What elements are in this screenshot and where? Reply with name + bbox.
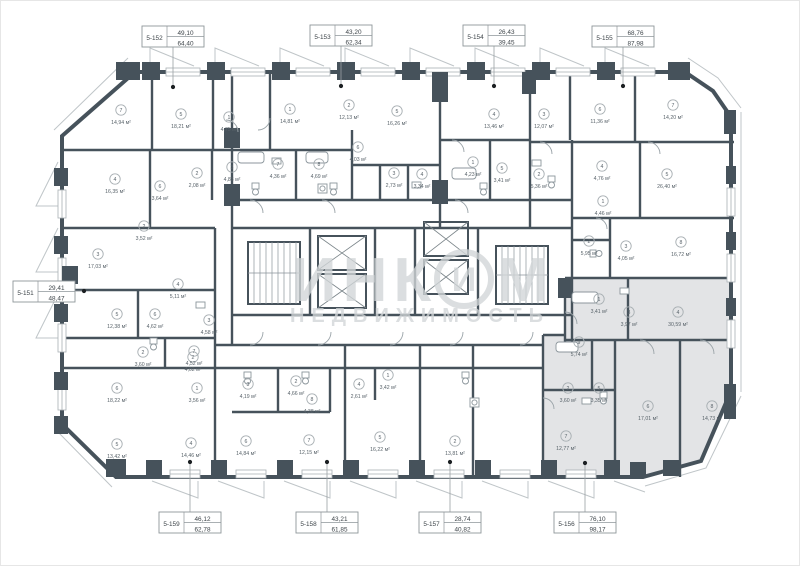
unit-label-5-153: 5-15343,2062,34: [310, 25, 372, 88]
room-number: 3: [97, 252, 100, 258]
floor-plan-drawing: 714,94 м²518,21 м²14,75 м²416,35 м²22,08…: [0, 0, 800, 566]
room-area: 12,07 м²: [534, 124, 554, 130]
leader-dot: [82, 289, 86, 293]
room-number: 9: [578, 340, 581, 346]
room-area: 4,76 м²: [594, 176, 611, 182]
room-number: 8: [311, 397, 314, 403]
leader-dot: [188, 460, 192, 464]
room-number: 5: [379, 435, 382, 441]
room-number: 7: [308, 438, 311, 444]
unit-area-total: 40,82: [455, 526, 471, 533]
unit-area-total: 87,98: [628, 40, 644, 47]
room-number: 8: [711, 404, 714, 410]
unit-id: 5-153: [314, 34, 331, 41]
room-area: 3,60 м²: [560, 398, 577, 404]
room-number: 2: [142, 350, 145, 356]
room-area: 2,08 м²: [189, 183, 206, 189]
room-number: 4: [601, 164, 604, 170]
room-area: 3,60 м²: [135, 362, 152, 368]
room-number: 1: [196, 386, 199, 392]
room-number: 7: [120, 108, 123, 114]
watermark: ИНК И М НЕДВИЖИМОСТЬ: [290, 246, 555, 327]
room-area: 4,19 м²: [240, 394, 257, 400]
room-area: 17,01 м²: [638, 416, 658, 422]
room-number: 5: [396, 109, 399, 115]
room-number: 3: [625, 244, 628, 250]
room-label: 44,76 м²: [594, 161, 611, 182]
room-label: 516,22 м²: [370, 432, 390, 453]
room-number: 2: [348, 103, 351, 109]
room-label: 611,36 м²: [590, 104, 610, 125]
room-area: 16,22 м²: [370, 447, 390, 453]
unit-area-living: 68,76: [628, 30, 644, 37]
unit-area-living: 28,74: [455, 516, 471, 523]
room-number: 2: [538, 172, 541, 178]
room-area: 12,13 м²: [339, 115, 359, 121]
room-number: 1: [387, 373, 390, 379]
room-area: 4,66 м²: [288, 391, 305, 397]
room-area: 14,73 м²: [702, 416, 722, 422]
unit-label-5-151: 5-15129,4148,47: [13, 281, 86, 302]
room-number: 2: [295, 379, 298, 385]
room-label: 416,35 м²: [105, 174, 125, 195]
unit-id: 5-154: [467, 34, 484, 41]
room-label: 63,64 м²: [152, 181, 169, 202]
room-number: 6: [159, 184, 162, 190]
room-area: 4,83 м²: [224, 177, 241, 183]
room-number: 6: [647, 404, 650, 410]
room-number: 5: [666, 172, 669, 178]
room-number: 1: [228, 115, 231, 121]
unit-area-total: 39,45: [499, 39, 515, 46]
room-label: 64,62 м²: [147, 309, 164, 330]
room-label: 14,23 м²: [465, 157, 482, 178]
room-number: 3: [628, 310, 631, 316]
leader-dot: [448, 460, 452, 464]
room-label: 614,84 м²: [236, 436, 256, 457]
room-label: 53,41 м²: [494, 163, 511, 184]
room-number: 2: [588, 239, 591, 245]
room-number: 6: [357, 145, 360, 151]
room-area: 16,35 м²: [105, 189, 125, 195]
room-number: 3: [543, 112, 546, 118]
room-area: 4,02 м²: [185, 367, 202, 373]
room-area: 4,58 м²: [201, 330, 218, 336]
unit-area-total: 62,34: [346, 39, 362, 46]
room-number: 2: [143, 224, 146, 230]
room-number: 6: [599, 107, 602, 113]
room-label: 816,72 м²: [671, 237, 691, 258]
leader-dot: [339, 84, 343, 88]
room-number: 6: [245, 439, 248, 445]
watermark-subtitle: НЕДВИЖИМОСТЬ: [290, 305, 550, 327]
room-area: 2,61 м²: [351, 394, 368, 400]
room-number: 2: [567, 386, 570, 392]
room-number: 5: [180, 112, 183, 118]
room-label: 24,66 м²: [288, 376, 305, 397]
room-number: 2: [454, 439, 457, 445]
room-number: 4: [358, 382, 361, 388]
room-number: 1: [472, 160, 475, 166]
unit-area-living: 43,21: [332, 516, 348, 523]
room-number: 6: [154, 312, 157, 318]
room-label: 213,81 м²: [445, 436, 465, 457]
unit-area-total: 48,47: [49, 295, 65, 302]
room-area: 18,22 м²: [107, 398, 127, 404]
room-area: 14,81 м²: [280, 119, 300, 125]
leader-dot: [171, 85, 175, 89]
unit-area-living: 29,41: [49, 285, 65, 292]
room-number: 3: [393, 171, 396, 177]
room-area: 5,74 м²: [571, 352, 588, 358]
unit-area-living: 76,10: [590, 516, 606, 523]
room-number: 5: [501, 166, 504, 172]
room-number: 3: [208, 318, 211, 324]
room-number: 2: [196, 171, 199, 177]
room-area: 16,26 м²: [387, 121, 407, 127]
room-area: 12,15 м²: [299, 450, 319, 456]
room-area: 12,77 м²: [556, 446, 576, 452]
room-label: 317,03 м²: [88, 249, 108, 270]
room-label: 712,15 м²: [299, 435, 319, 456]
room-area: 26,40 м²: [657, 184, 677, 190]
room-area: 13,81 м²: [445, 451, 465, 457]
room-number: 4: [114, 177, 117, 183]
room-area: 4,52 м²: [186, 361, 203, 367]
room-label: 25,36 м²: [531, 169, 548, 190]
unit-area-total: 64,40: [178, 40, 194, 47]
unit-id: 5-157: [423, 521, 440, 528]
room-number: 4: [177, 282, 180, 288]
room-number: 7: [565, 434, 568, 440]
room-number: 4: [493, 112, 496, 118]
room-area: 3,64 м²: [152, 196, 169, 202]
room-label: 518,21 м²: [171, 109, 191, 130]
room-area: 13,42 м²: [107, 454, 127, 460]
leader-dot: [583, 461, 587, 465]
room-number: 1: [602, 199, 605, 205]
room-label: 312,07 м²: [534, 109, 554, 130]
room-number: 4: [421, 172, 424, 178]
room-area: 4,75 м²: [221, 127, 238, 133]
room-area: 11,36 м²: [590, 119, 610, 125]
unit-id: 5-159: [163, 521, 180, 528]
room-area: 3,56 м²: [189, 398, 206, 404]
leader-dot: [621, 84, 625, 88]
unit-area-total: 98,17: [590, 526, 606, 533]
unit-id: 5-156: [558, 521, 575, 528]
room-number: 1: [289, 107, 292, 113]
room-label: 512,38 м²: [107, 309, 127, 330]
room-number: 5: [598, 386, 601, 392]
room-area: 3,34 м²: [414, 184, 431, 190]
room-label: 414,46 м²: [181, 438, 201, 459]
unit-id: 5-151: [17, 290, 34, 297]
unit-id: 5-158: [300, 521, 317, 528]
floor-plan-page: 714,94 м²518,21 м²14,75 м²416,35 м²22,08…: [0, 0, 800, 566]
room-label: 114,81 м²: [280, 104, 300, 125]
room-area: 14,46 м²: [181, 453, 201, 459]
room-label: 212,13 м²: [339, 100, 359, 121]
room-area: 2,73 м²: [386, 183, 403, 189]
room-label: 84,38 м²: [304, 394, 321, 415]
room-number: 1: [598, 297, 601, 303]
room-label: 14,75 м²: [221, 112, 238, 133]
room-area: 4,03 м²: [350, 157, 367, 163]
leader-dot: [325, 460, 329, 464]
room-label: 34,05 м²: [618, 241, 635, 262]
room-number: 3: [247, 382, 250, 388]
unit-label-5-157: 5-15728,7440,82: [419, 460, 481, 533]
room-area: 3,35 м²: [591, 398, 608, 404]
leader-dot: [492, 84, 496, 88]
room-area: 4,23 м²: [465, 172, 482, 178]
room-label: 43,34 м²: [414, 169, 431, 190]
room-label: 34,19 м²: [240, 379, 257, 400]
room-area: 4,05 м²: [618, 256, 635, 262]
room-number: 7: [277, 162, 280, 168]
room-area: 4,46 м²: [595, 211, 612, 217]
room-number: 7: [193, 349, 196, 355]
room-number: 4: [190, 441, 193, 447]
room-number: 7: [672, 103, 675, 109]
room-label: 42,61 м²: [351, 379, 368, 400]
room-area: 3,52 м²: [136, 236, 153, 242]
room-area: 3,97 м²: [621, 322, 638, 328]
room-label: 714,20 м²: [663, 100, 683, 121]
unit-area-living: 26,43: [499, 29, 515, 36]
room-number: 6: [116, 386, 119, 392]
room-number: 5: [116, 312, 119, 318]
room-label: 413,46 м²: [484, 109, 504, 130]
room-area: 12,38 м²: [107, 324, 127, 330]
room-label: 22,08 м²: [189, 168, 206, 189]
unit-id: 5-152: [146, 35, 163, 42]
room-label: 14,46 м²: [595, 196, 612, 217]
room-label: 32,73 м²: [386, 168, 403, 189]
watermark-logo-letter: И: [452, 261, 476, 299]
room-label: 714,94 м²: [111, 105, 131, 126]
room-area: 16,72 м²: [671, 252, 691, 258]
room-area: 3,41 м²: [591, 309, 608, 315]
room-number: 8: [318, 162, 321, 168]
room-area: 5,36 м²: [531, 184, 548, 190]
room-label: 516,26 м²: [387, 106, 407, 127]
room-area: 14,94 м²: [111, 120, 131, 126]
room-number: 3: [231, 165, 234, 171]
unit-id: 5-155: [596, 35, 613, 42]
room-area: 4,69 м²: [311, 174, 328, 180]
unit-area-total: 62,78: [195, 526, 211, 533]
room-label: 13,42 м²: [380, 370, 397, 391]
room-area: 5,95 м²: [581, 251, 598, 257]
room-label: 23,60 м²: [135, 347, 152, 368]
room-area: 18,21 м²: [171, 124, 191, 130]
room-area: 5,11 м²: [170, 294, 187, 300]
room-area: 4,62 м²: [147, 324, 164, 330]
room-area: 14,84 м²: [236, 451, 256, 457]
room-label: 13,56 м²: [189, 383, 206, 404]
unit-area-living: 43,20: [346, 29, 362, 36]
room-area: 17,03 м²: [88, 264, 108, 270]
room-label: 34,83 м²: [224, 162, 241, 183]
room-number: 8: [680, 240, 683, 246]
room-area: 13,46 м²: [484, 124, 504, 130]
unit-area-living: 46,12: [195, 516, 211, 523]
unit-area-total: 61,85: [332, 526, 348, 533]
room-area: 4,36 м²: [270, 174, 287, 180]
room-area: 14,20 м²: [663, 115, 683, 121]
room-area: 4,38 м²: [304, 409, 321, 415]
room-label: 513,42 м²: [107, 439, 127, 460]
room-area: 3,42 м²: [380, 385, 397, 391]
room-label: 618,22 м²: [107, 383, 127, 404]
room-label: 526,40 м²: [657, 169, 677, 190]
room-number: 5: [116, 442, 119, 448]
unit-area-living: 49,10: [178, 30, 194, 37]
room-number: 4: [677, 310, 680, 316]
room-area: 3,41 м²: [494, 178, 511, 184]
room-area: 30,59 м²: [668, 322, 688, 328]
